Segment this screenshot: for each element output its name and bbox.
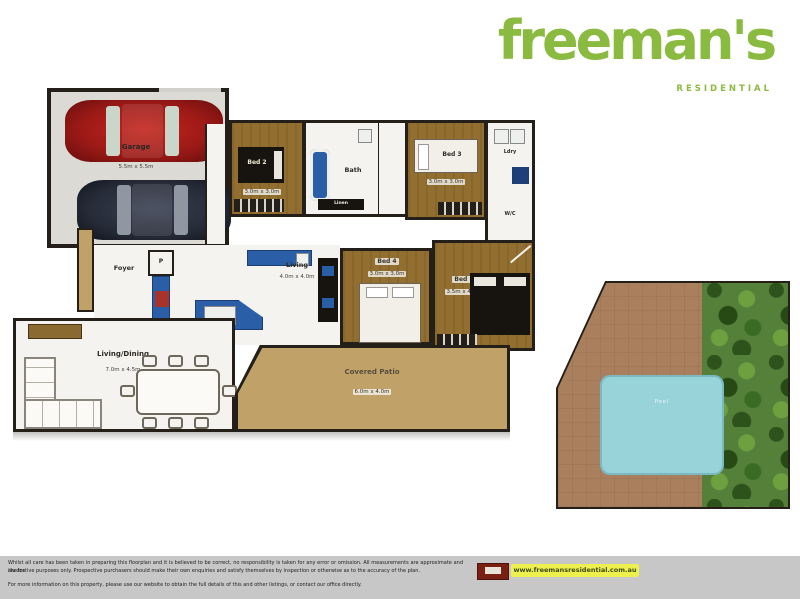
room-bed2: Bed 2 3.0m x 3.0m bbox=[229, 120, 305, 217]
toilet-icon bbox=[358, 129, 372, 143]
pool-deck: Pool bbox=[558, 283, 788, 507]
chair-icon bbox=[142, 355, 157, 367]
room-patio: Covered Patio 6.0m x 4.0m bbox=[235, 345, 510, 432]
bed4-bed-icon bbox=[359, 283, 421, 343]
bed1-door-swing bbox=[510, 245, 531, 263]
bed1-bed-icon bbox=[470, 273, 530, 335]
floorplan-page: freeman's RESIDENTIAL Garage 5.5m x 5.5m… bbox=[0, 0, 800, 599]
pool: Pool bbox=[600, 375, 724, 475]
footer-bar: Whilst all care has been taken in prepar… bbox=[0, 556, 800, 599]
oven-icon bbox=[155, 291, 169, 307]
chair-icon bbox=[168, 417, 183, 429]
bed3-bed-icon: Bed 3 bbox=[414, 139, 478, 173]
tv-unit-icon bbox=[318, 258, 338, 322]
room-bath: Bath Linen bbox=[303, 120, 381, 217]
patio-label: Covered Patio bbox=[307, 369, 437, 377]
bed2-bed-icon: Bed 2 bbox=[238, 147, 284, 183]
room-bed4: Bed 4 3.0m x 3.0m bbox=[340, 248, 432, 345]
website-link[interactable]: www.freemansresidential.com.au bbox=[511, 564, 639, 577]
brand-logo: freeman's bbox=[492, 6, 780, 76]
room-laundry-wc: Ldry W/C bbox=[485, 120, 535, 246]
chair-icon bbox=[194, 355, 209, 367]
bathtub-icon bbox=[310, 149, 330, 201]
hallway-top bbox=[379, 120, 407, 217]
washer-icon bbox=[494, 129, 509, 144]
living-dims: 4.0m x 4.0m bbox=[272, 274, 322, 280]
pool-label: Pool bbox=[602, 399, 722, 405]
pool-deck-outline: Pool bbox=[556, 281, 790, 509]
chair-icon bbox=[120, 385, 135, 397]
chair-icon bbox=[142, 417, 157, 429]
wc-label: W/C bbox=[488, 211, 532, 217]
bed3-label: Bed 3 bbox=[427, 152, 477, 159]
garage-door bbox=[159, 88, 221, 92]
chair-icon bbox=[168, 355, 183, 367]
bed2-wardrobe bbox=[234, 199, 284, 212]
footer-logo-icon bbox=[477, 563, 509, 580]
bed1-wardrobe bbox=[437, 334, 477, 346]
pool-area: Pool bbox=[556, 281, 790, 509]
foyer-label: Foyer bbox=[104, 265, 144, 272]
chair-icon bbox=[222, 385, 237, 397]
linen-label: Linen bbox=[318, 201, 364, 206]
garage-label: Garage bbox=[91, 144, 181, 152]
room-bed3: Bed 3 3.0m x 3.0m bbox=[405, 120, 487, 220]
bed3-wardrobe bbox=[438, 202, 482, 215]
bed2-dims: 3.0m x 3.0m bbox=[234, 189, 290, 195]
garage-dims: 5.5m x 5.5m bbox=[91, 164, 181, 170]
bed4-label: Bed 4 bbox=[359, 259, 415, 266]
pantry: P bbox=[148, 250, 174, 276]
linen-cupboard: Linen bbox=[318, 199, 364, 210]
red-car-icon bbox=[65, 100, 223, 162]
sideboard-icon bbox=[28, 324, 82, 339]
laundry-label: Ldry bbox=[488, 149, 532, 155]
living-label: Living bbox=[272, 262, 322, 269]
bed2-label: Bed 2 bbox=[238, 160, 276, 167]
bed3-dims: 3.0m x 3.0m bbox=[416, 179, 476, 185]
disclaimer-line2: illustrative purposes only. Prospective … bbox=[8, 568, 463, 576]
chair-icon bbox=[194, 417, 209, 429]
laundry-tub-icon bbox=[512, 167, 529, 184]
sofa-icon bbox=[24, 399, 102, 429]
pantry-label: P bbox=[150, 259, 172, 266]
garage-entry bbox=[205, 124, 225, 244]
patio-dims: 6.0m x 4.0m bbox=[307, 389, 437, 395]
dining-table-icon bbox=[136, 369, 220, 415]
porch bbox=[77, 228, 94, 312]
dryer-icon bbox=[510, 129, 525, 144]
bath-label: Bath bbox=[330, 167, 376, 174]
room-bed1: Bed 1 3.5m x 4.0m bbox=[432, 240, 535, 351]
room-garage: Garage 5.5m x 5.5m bbox=[47, 88, 229, 248]
bed4-dims: 3.0m x 3.0m bbox=[357, 271, 417, 277]
disclaimer-line3: For more information on this property, p… bbox=[8, 582, 448, 590]
brand-tagline: RESIDENTIAL bbox=[492, 84, 772, 94]
room-living-dining: Living/Dining 7.0m x 4.5m bbox=[13, 318, 235, 432]
